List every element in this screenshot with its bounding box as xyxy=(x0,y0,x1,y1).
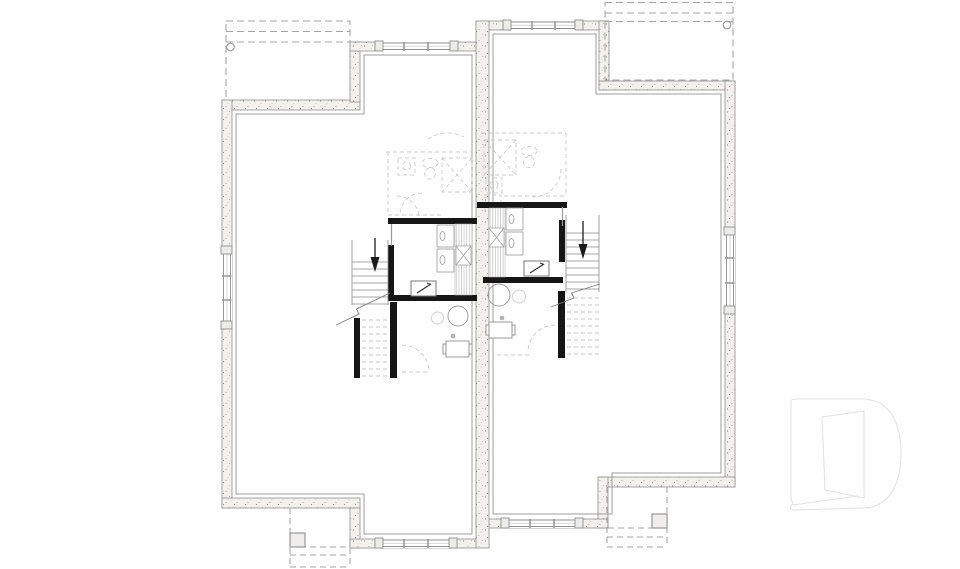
porch-pier-footing xyxy=(290,533,305,547)
window-left-bottom xyxy=(375,538,457,548)
x-marked-fixture xyxy=(456,246,471,265)
floor-plan-page xyxy=(0,0,960,569)
party-wall xyxy=(476,21,489,548)
floor-drain-dot xyxy=(451,334,456,339)
window-left-side xyxy=(221,246,232,329)
wall-bottom-right-h xyxy=(599,477,735,487)
electrical-panel xyxy=(524,261,549,276)
table xyxy=(486,322,515,338)
electrical-panel xyxy=(411,281,436,296)
x-marked-fixture xyxy=(489,228,504,247)
porch-pier-footing xyxy=(652,514,667,528)
wall-below-deck-h xyxy=(599,81,735,90)
window-right-side xyxy=(724,227,735,314)
window-left-top xyxy=(375,41,458,52)
window-right-bottom xyxy=(501,518,583,528)
floor-drain-dot xyxy=(500,316,505,321)
stair-partition xyxy=(558,291,565,358)
window-right-top xyxy=(503,20,583,31)
wall-bottom-left-h xyxy=(222,498,360,508)
floor-plan-canvas xyxy=(0,0,960,569)
wall-top-left-h xyxy=(222,100,360,110)
table xyxy=(443,341,472,357)
